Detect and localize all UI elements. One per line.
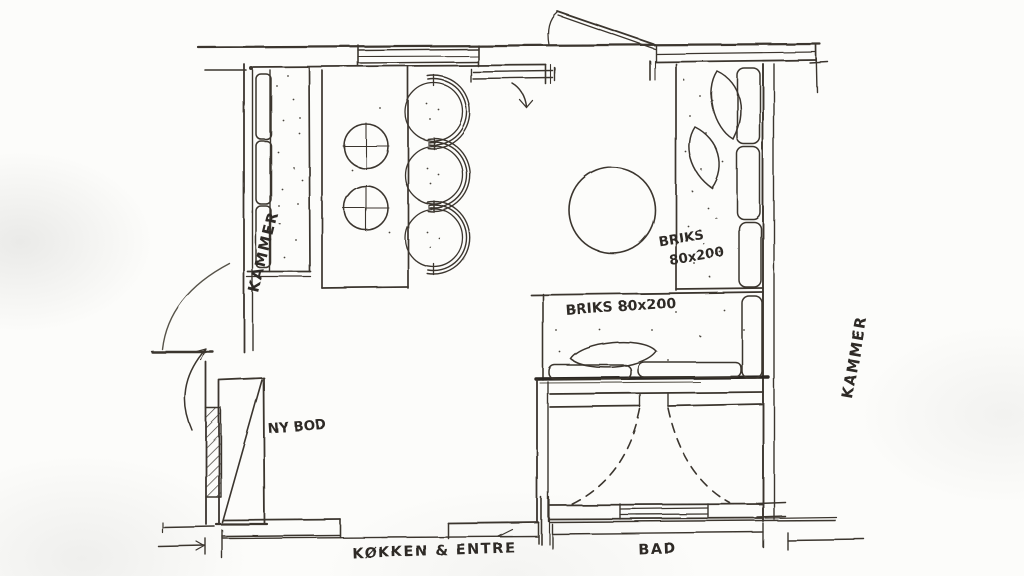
round-table bbox=[569, 167, 655, 253]
label-kammer-right: KAMMER bbox=[838, 314, 870, 400]
ink-layer: KAMMER KAMMER BRIKS 80x200 BRIKS 80x200 … bbox=[152, 11, 870, 562]
label-bad: BAD bbox=[638, 541, 677, 558]
entry-door bbox=[546, 11, 656, 84]
top-windows bbox=[358, 45, 555, 82]
label-briks-bottom: BRIKS 80x200 bbox=[565, 295, 676, 319]
ny-bod-closet bbox=[206, 378, 267, 524]
label-ny-bod: NY BOD bbox=[267, 417, 327, 437]
chairs bbox=[405, 75, 470, 275]
label-briks-right-1: BRIKS bbox=[657, 227, 705, 250]
label-kammer-left: KAMMER bbox=[245, 209, 283, 295]
door-swing-arrows bbox=[162, 84, 533, 430]
labels: KAMMER KAMMER BRIKS 80x200 BRIKS 80x200 … bbox=[245, 209, 871, 562]
floor-plan-canvas: KAMMER KAMMER BRIKS 80x200 BRIKS 80x200 … bbox=[0, 0, 1024, 576]
label-kokken-entre: KØKKEN & ENTRE bbox=[352, 540, 517, 562]
bathroom bbox=[537, 380, 763, 544]
floor-plan-sketch: KAMMER KAMMER BRIKS 80x200 BRIKS 80x200 … bbox=[0, 0, 1024, 576]
kitchen-table bbox=[322, 66, 408, 288]
